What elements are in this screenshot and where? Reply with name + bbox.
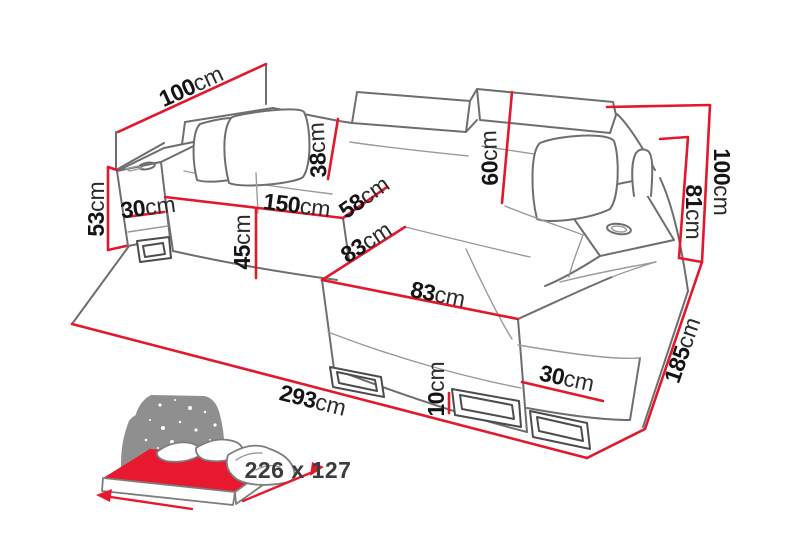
dim-label-total-depth: 185cm	[659, 314, 706, 386]
dim-label-total-height: 100cm	[709, 148, 735, 216]
dim-label-leg-height: 10cm	[423, 361, 449, 416]
dim-label-backrest-right-height: 60cm	[475, 130, 503, 186]
sofa-leg	[452, 389, 521, 427]
headrest-flap-left	[352, 92, 470, 132]
dim-label-seat-depth: 58cm	[334, 171, 394, 224]
pillow-right	[532, 135, 617, 220]
headrest-flap-right	[477, 89, 616, 133]
dimension-diagram: 100cm 53cm 30cm 150cm 58cm 38cm 60cm 45c…	[0, 0, 800, 533]
dim-label-base-right-width: 30cm	[537, 360, 596, 397]
dim-label-depth-back-left: 100cm	[155, 60, 227, 112]
sofa-diagram-canvas: 100cm 53cm 30cm 150cm 58cm 38cm 60cm 45c…	[0, 0, 800, 533]
dim-label-seat-height: 45cm	[229, 214, 255, 269]
handle-strap-icon	[632, 149, 652, 196]
dim-label-chaise-width: 83cm	[408, 276, 467, 312]
bed-icon	[96, 395, 324, 509]
sleeping-size-label: 226 x 127	[245, 457, 352, 483]
dim-label-armrest-right-height: 81cm	[681, 184, 707, 239]
dim-label-backrest-left-height: 38cm	[303, 122, 332, 179]
sofa-leg	[137, 237, 171, 262]
dim-label-armrest-left-height: 53cm	[83, 181, 109, 236]
pillow-front-left	[224, 109, 309, 185]
